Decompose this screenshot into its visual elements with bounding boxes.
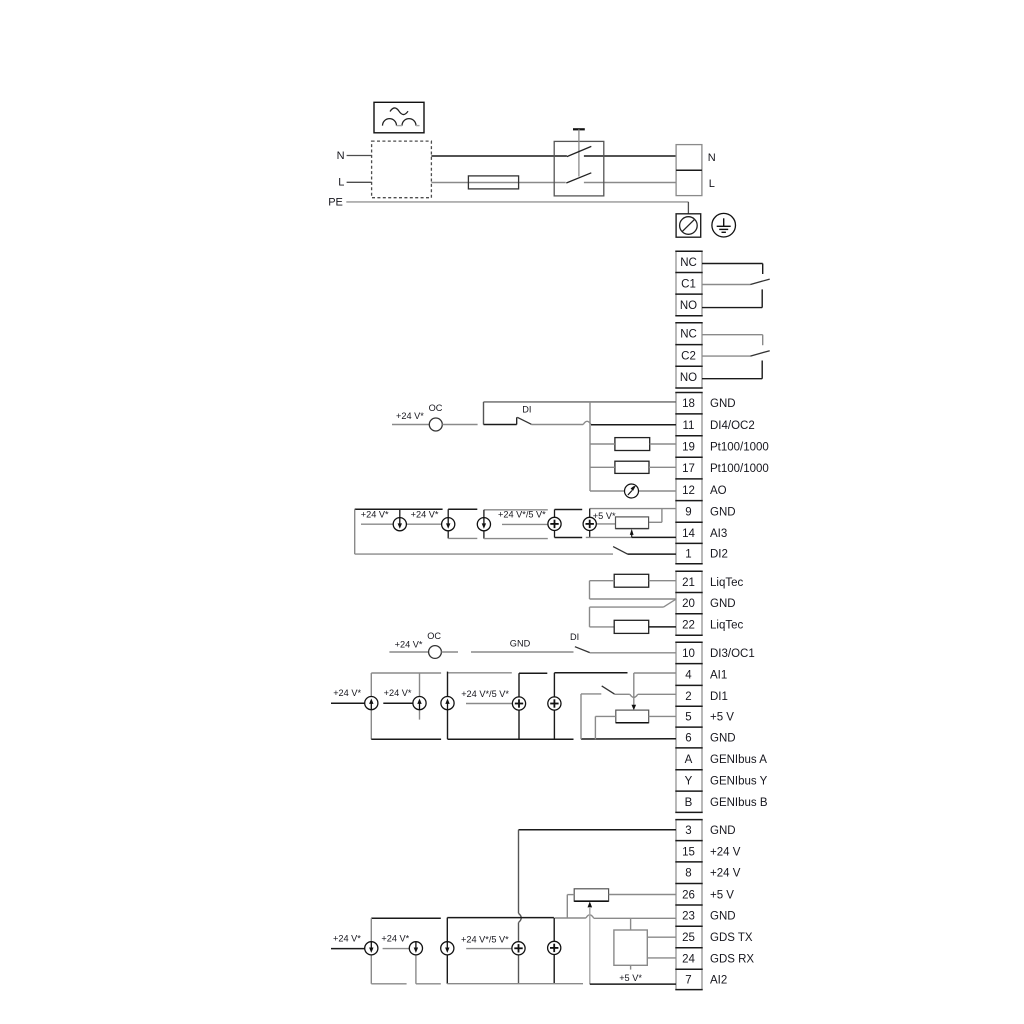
svg-text:Pt100/1000: Pt100/1000 xyxy=(710,463,769,475)
svg-text:+24 V*: +24 V* xyxy=(361,510,389,520)
svg-text:+24 V*: +24 V* xyxy=(396,411,424,421)
svg-text:26: 26 xyxy=(682,889,695,901)
svg-text:L: L xyxy=(709,178,715,190)
svg-text:C1: C1 xyxy=(681,278,696,290)
svg-text:17: 17 xyxy=(682,463,695,475)
svg-text:GND: GND xyxy=(710,733,736,745)
svg-text:Y: Y xyxy=(685,775,693,787)
svg-text:NO: NO xyxy=(680,300,697,312)
svg-text:9: 9 xyxy=(685,506,691,518)
svg-text:+5 V*: +5 V* xyxy=(619,973,642,983)
svg-text:DI2: DI2 xyxy=(710,549,728,561)
svg-text:Pt100/1000: Pt100/1000 xyxy=(710,442,769,454)
svg-text:GND: GND xyxy=(710,598,736,610)
svg-text:2: 2 xyxy=(685,691,691,703)
svg-text:+24 V*: +24 V* xyxy=(395,640,423,650)
svg-text:GENIbus Y: GENIbus Y xyxy=(710,775,768,787)
svg-text:18: 18 xyxy=(682,398,695,410)
svg-text:A: A xyxy=(685,754,693,766)
svg-text:8: 8 xyxy=(685,868,691,880)
svg-text:NC: NC xyxy=(680,329,697,341)
svg-text:+24 V*: +24 V* xyxy=(333,688,361,698)
svg-text:20: 20 xyxy=(682,598,695,610)
svg-text:GENIbus A: GENIbus A xyxy=(710,754,767,766)
svg-text:DI: DI xyxy=(570,632,579,642)
svg-text:+5 V*: +5 V* xyxy=(593,511,616,521)
svg-text:6: 6 xyxy=(685,733,691,745)
svg-text:NC: NC xyxy=(680,257,697,269)
svg-text:+24 V: +24 V xyxy=(710,868,741,880)
svg-text:NO: NO xyxy=(680,372,697,384)
svg-text:GND: GND xyxy=(710,398,736,410)
svg-text:GDS TX: GDS TX xyxy=(710,932,753,944)
svg-text:N: N xyxy=(337,150,345,162)
svg-text:AI1: AI1 xyxy=(710,670,727,682)
svg-text:+24 V*: +24 V* xyxy=(333,933,361,943)
svg-text:DI: DI xyxy=(522,404,531,414)
svg-text:+5 V: +5 V xyxy=(710,712,734,724)
svg-text:+24 V*: +24 V* xyxy=(384,688,412,698)
svg-text:24: 24 xyxy=(682,953,695,965)
svg-text:19: 19 xyxy=(682,442,695,454)
svg-text:+24 V*/5 V*: +24 V*/5 V* xyxy=(498,510,546,520)
svg-text:N: N xyxy=(708,152,716,164)
svg-text:GND: GND xyxy=(710,911,736,923)
svg-text:GND: GND xyxy=(710,506,736,518)
svg-text:PE: PE xyxy=(328,197,343,209)
svg-text:+24 V: +24 V xyxy=(710,846,741,858)
svg-text:GND: GND xyxy=(510,638,531,648)
svg-text:+24 V*: +24 V* xyxy=(381,934,409,944)
svg-text:3: 3 xyxy=(685,825,691,837)
svg-text:21: 21 xyxy=(682,577,695,589)
svg-text:LiqTec: LiqTec xyxy=(710,577,743,589)
svg-text:GND: GND xyxy=(710,825,736,837)
svg-text:+24 V*: +24 V* xyxy=(411,510,439,520)
svg-text:+24 V*/5 V*: +24 V*/5 V* xyxy=(461,689,509,699)
svg-text:1: 1 xyxy=(685,549,691,561)
svg-text:DI4/OC2: DI4/OC2 xyxy=(710,420,755,432)
svg-text:4: 4 xyxy=(685,670,692,682)
svg-text:7: 7 xyxy=(685,974,691,986)
svg-text:DI1: DI1 xyxy=(710,691,728,703)
svg-text:23: 23 xyxy=(682,911,695,923)
svg-text:22: 22 xyxy=(682,620,695,632)
svg-text:DI3/OC1: DI3/OC1 xyxy=(710,648,755,660)
svg-text:GENIbus B: GENIbus B xyxy=(710,797,768,809)
svg-text:15: 15 xyxy=(682,846,695,858)
svg-text:10: 10 xyxy=(682,648,695,660)
svg-text:B: B xyxy=(685,797,693,809)
svg-text:LiqTec: LiqTec xyxy=(710,620,743,632)
svg-text:C2: C2 xyxy=(681,350,696,362)
svg-text:L: L xyxy=(338,177,344,189)
svg-text:OC: OC xyxy=(427,631,441,641)
svg-text:12: 12 xyxy=(682,485,695,497)
svg-text:+24 V*/5 V*: +24 V*/5 V* xyxy=(461,934,509,944)
svg-text:OC: OC xyxy=(429,403,443,413)
svg-text:14: 14 xyxy=(682,528,695,540)
svg-text:GDS RX: GDS RX xyxy=(710,953,754,965)
svg-text:AI2: AI2 xyxy=(710,974,727,986)
svg-text:11: 11 xyxy=(683,420,695,432)
svg-text:25: 25 xyxy=(682,932,695,944)
svg-text:+5 V: +5 V xyxy=(710,889,734,901)
svg-text:AO: AO xyxy=(710,485,727,497)
svg-text:AI3: AI3 xyxy=(710,528,727,540)
svg-text:5: 5 xyxy=(685,712,691,724)
